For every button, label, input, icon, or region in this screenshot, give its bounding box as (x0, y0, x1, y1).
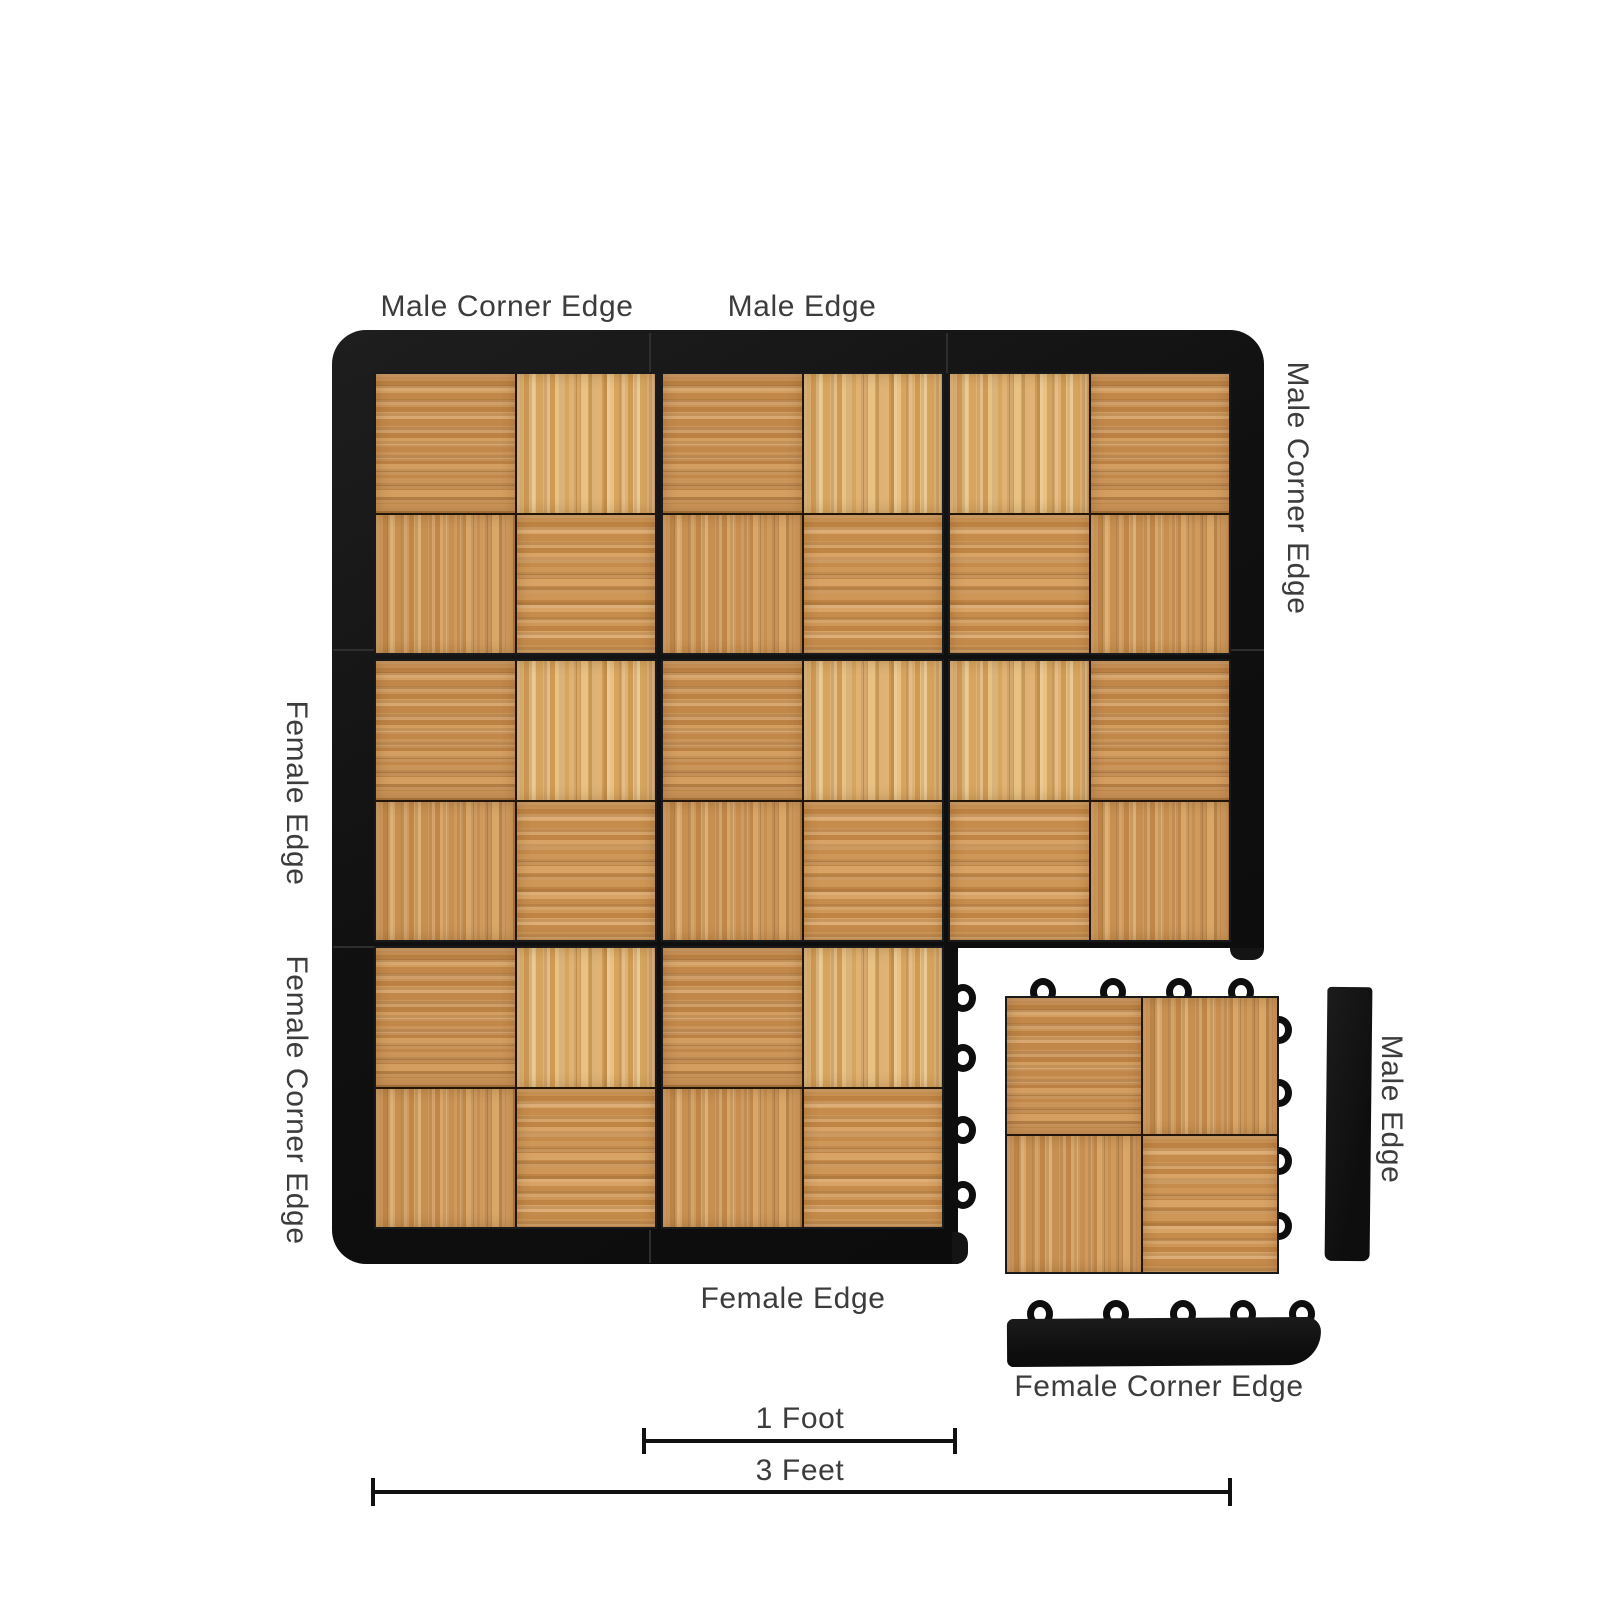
parquet-tile (948, 659, 1231, 942)
wood-quadrant (663, 1089, 802, 1228)
trim-seam (1231, 649, 1264, 651)
wood-quadrant (663, 948, 802, 1087)
wood-quadrant (950, 515, 1089, 654)
wood-quadrant (663, 661, 802, 800)
wood-quadrant (1091, 374, 1230, 513)
label-male-edge-piece: Male Edge (1376, 1035, 1406, 1184)
male-edge-piece (1325, 987, 1373, 1261)
connector-loop-icon (950, 1116, 976, 1144)
wood-quadrant (663, 802, 802, 941)
measure-bar (642, 1439, 957, 1443)
label-female-edge-bottom: Female Edge (700, 1284, 885, 1314)
parquet-tile (948, 372, 1231, 655)
wood-quadrant (376, 374, 515, 513)
label-male-edge-top: Male Edge (728, 292, 877, 322)
wood-quadrant (376, 948, 515, 1087)
parquet-tile (374, 946, 657, 1229)
wood-quadrant (1007, 998, 1141, 1134)
wood-quadrant (1143, 1136, 1277, 1272)
wood-quadrant (663, 515, 802, 654)
trim-seam (333, 649, 375, 651)
label-female-corner-edge-piece: Female Corner Edge (1014, 1372, 1303, 1402)
wood-quadrant (950, 374, 1089, 513)
label-female-edge-left: Female Edge (281, 700, 311, 885)
wood-quadrant (517, 1089, 656, 1228)
trim-seam (649, 1230, 651, 1263)
wood-quadrant (1007, 1136, 1141, 1272)
trim-seam (946, 333, 948, 373)
measure-tick (1228, 1478, 1232, 1506)
wood-quadrant (950, 661, 1089, 800)
wood-quadrant (1091, 661, 1230, 800)
wood-quadrant (804, 374, 943, 513)
wood-quadrant (1143, 998, 1277, 1134)
connector-loop-icon (950, 1181, 976, 1209)
wood-quadrant (804, 515, 943, 654)
wood-quadrant (804, 948, 943, 1087)
wood-quadrant (517, 661, 656, 800)
wood-quadrant (376, 1089, 515, 1228)
one-foot-measure-line (642, 1428, 957, 1454)
bottom-trim-end-cap (952, 1232, 968, 1264)
wood-quadrant (517, 374, 656, 513)
wood-quadrant (517, 802, 656, 941)
wood-quadrant (376, 802, 515, 941)
three-feet-measure-line (371, 1478, 1232, 1506)
label-female-corner-edge-left: Female Corner Edge (281, 955, 311, 1244)
wood-quadrant (376, 661, 515, 800)
wood-quadrant (804, 1089, 943, 1228)
wood-quadrant (1091, 802, 1230, 941)
wood-quadrant (804, 661, 943, 800)
parquet-tile (374, 372, 657, 655)
wood-quadrant (517, 515, 656, 654)
trim-seam (649, 333, 651, 373)
wood-quadrant (950, 802, 1089, 941)
measure-tick (953, 1428, 957, 1454)
wood-quadrant (663, 374, 802, 513)
label-male-corner-edge-top: Male Corner Edge (380, 292, 633, 322)
connector-loop-icon (950, 1044, 976, 1072)
dance-floor-product-diagram: Male Corner Edge Male Edge Male Corner E… (0, 0, 1600, 1600)
wood-quadrant (517, 948, 656, 1087)
wood-quadrant (1091, 515, 1230, 654)
parquet-tile (661, 659, 944, 942)
wood-quadrant (376, 515, 515, 654)
label-male-corner-edge-right: Male Corner Edge (1282, 361, 1312, 614)
measure-bar (371, 1490, 1232, 1494)
female-corner-edge-piece (1007, 1317, 1321, 1367)
trim-seam (333, 946, 375, 948)
loose-parquet-tile (1005, 996, 1279, 1274)
connector-loop-icon (950, 984, 976, 1012)
wood-quadrant (804, 802, 943, 941)
parquet-tile (374, 659, 657, 942)
right-trim-end-cap (1230, 948, 1264, 960)
parquet-tile (661, 946, 944, 1229)
parquet-tile (661, 372, 944, 655)
